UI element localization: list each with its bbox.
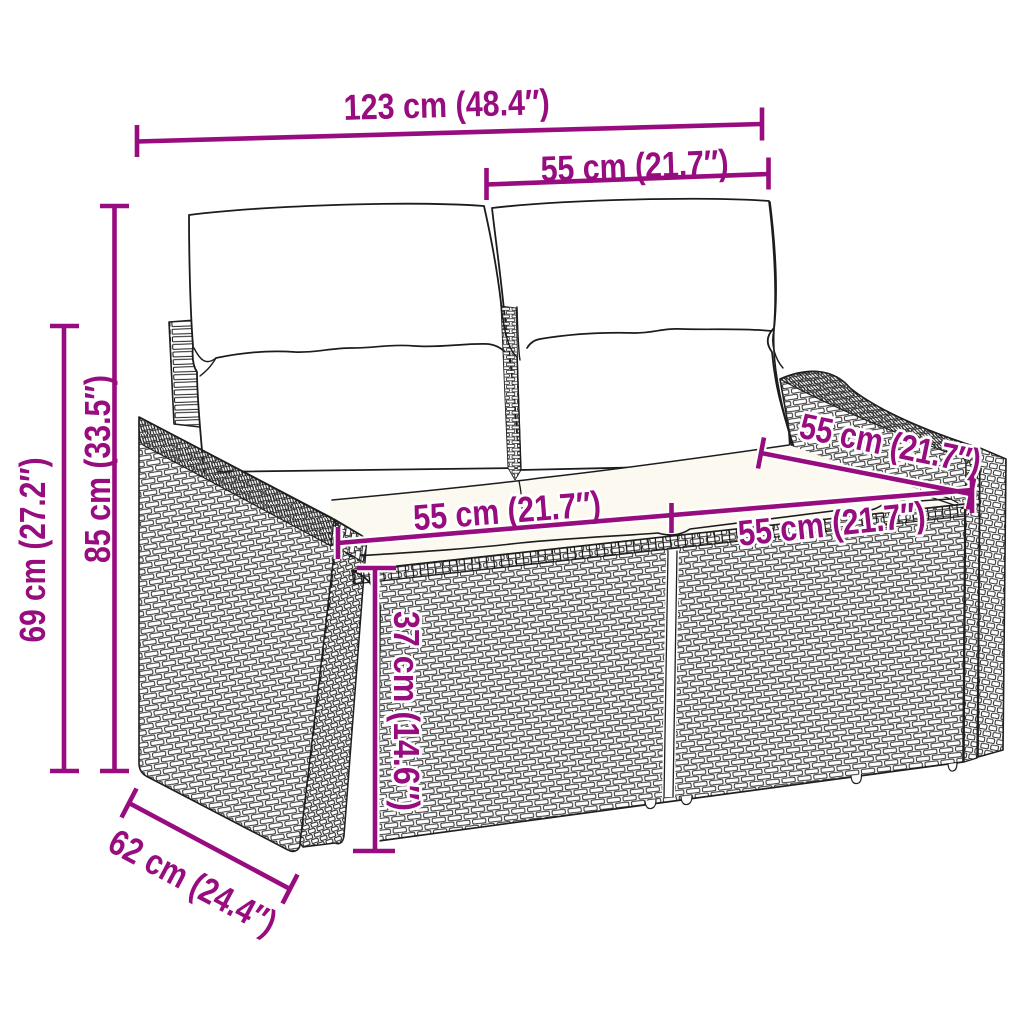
svg-text:69 cm (27.2″): 69 cm (27.2″) [12, 458, 53, 643]
svg-text:85 cm (33.5″): 85 cm (33.5″) [77, 375, 118, 563]
svg-text:55 cm (21.7″): 55 cm (21.7″) [540, 142, 729, 190]
svg-text:123 cm (48.4″): 123 cm (48.4″) [343, 81, 550, 128]
svg-text:37 cm (14.6″): 37 cm (14.6″) [386, 611, 427, 811]
